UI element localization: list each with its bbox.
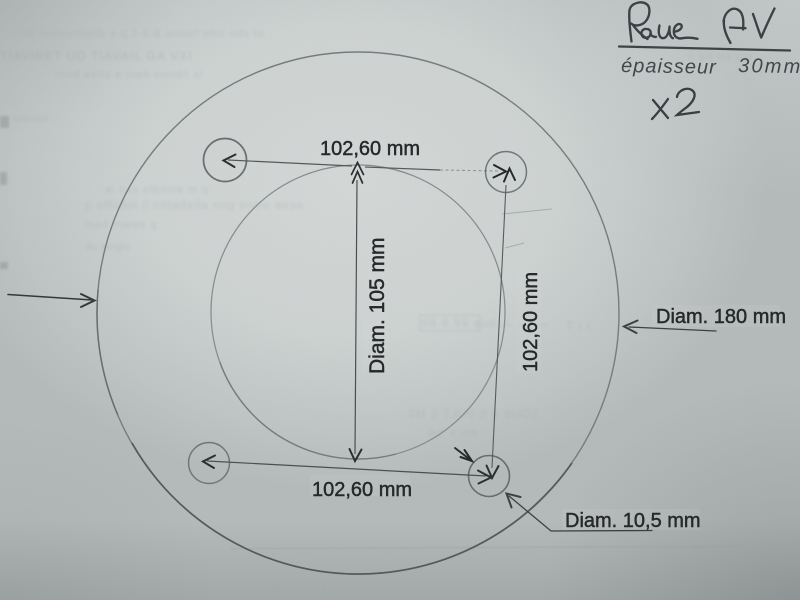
svg-text:30mm: 30mm xyxy=(738,55,800,78)
svg-text:Diam. 180 mm: Diam. 180 mm xyxy=(656,306,786,328)
svg-text:Diam. 10,5 mm: Diam. 10,5 mm xyxy=(565,510,701,532)
svg-text:102,60 mm: 102,60 mm xyxy=(312,479,412,501)
svg-text:sebmol: sebmol xyxy=(12,113,47,125)
svg-text:T I I: T I I xyxy=(566,319,591,333)
svg-text:al nos elbmite m q: al nos elbmite m q xyxy=(105,184,209,196)
svg-text:Diam. 105 mm: Diam. 105 mm xyxy=(366,237,389,374)
svg-text:102,60 mm: 102,60 mm xyxy=(320,138,420,160)
svg-text:m2 4 oth: m2 4 oth xyxy=(428,428,479,440)
svg-text:du sergio: du sergio xyxy=(85,241,130,253)
svg-text:ab ruotnemelib e q 2-6-8 anno: ab ruotnemelib e q 2-6-8 annoit ehtr ods… xyxy=(22,28,264,40)
svg-text:TIAVIRET UD TIAVAIL GA VXI: TIAVIRET UD TIAVAIL GA VXI xyxy=(0,49,193,63)
svg-text:102,60 mm: 102,60 mm xyxy=(520,272,542,372)
svg-text:épaisseur: épaisseur xyxy=(621,55,717,79)
svg-text:B 0:2 1 1 1 1 8 a 0 2 0 9 1 1: B 0:2 1 1 1 1 8 a 0 2 0 9 1 1 xyxy=(272,584,451,596)
svg-text:2M 2 TJU0 2 a 8UO2: 2M 2 TJU0 2 a 8UO2 xyxy=(408,407,539,421)
svg-text:med inales q: med inales q xyxy=(85,219,157,231)
svg-text:08 8.99 aud: 08 8.99 aud xyxy=(422,316,496,330)
svg-text:rnod estla e tneb enodit al: rnod estla e tneb enodit al xyxy=(55,69,203,81)
